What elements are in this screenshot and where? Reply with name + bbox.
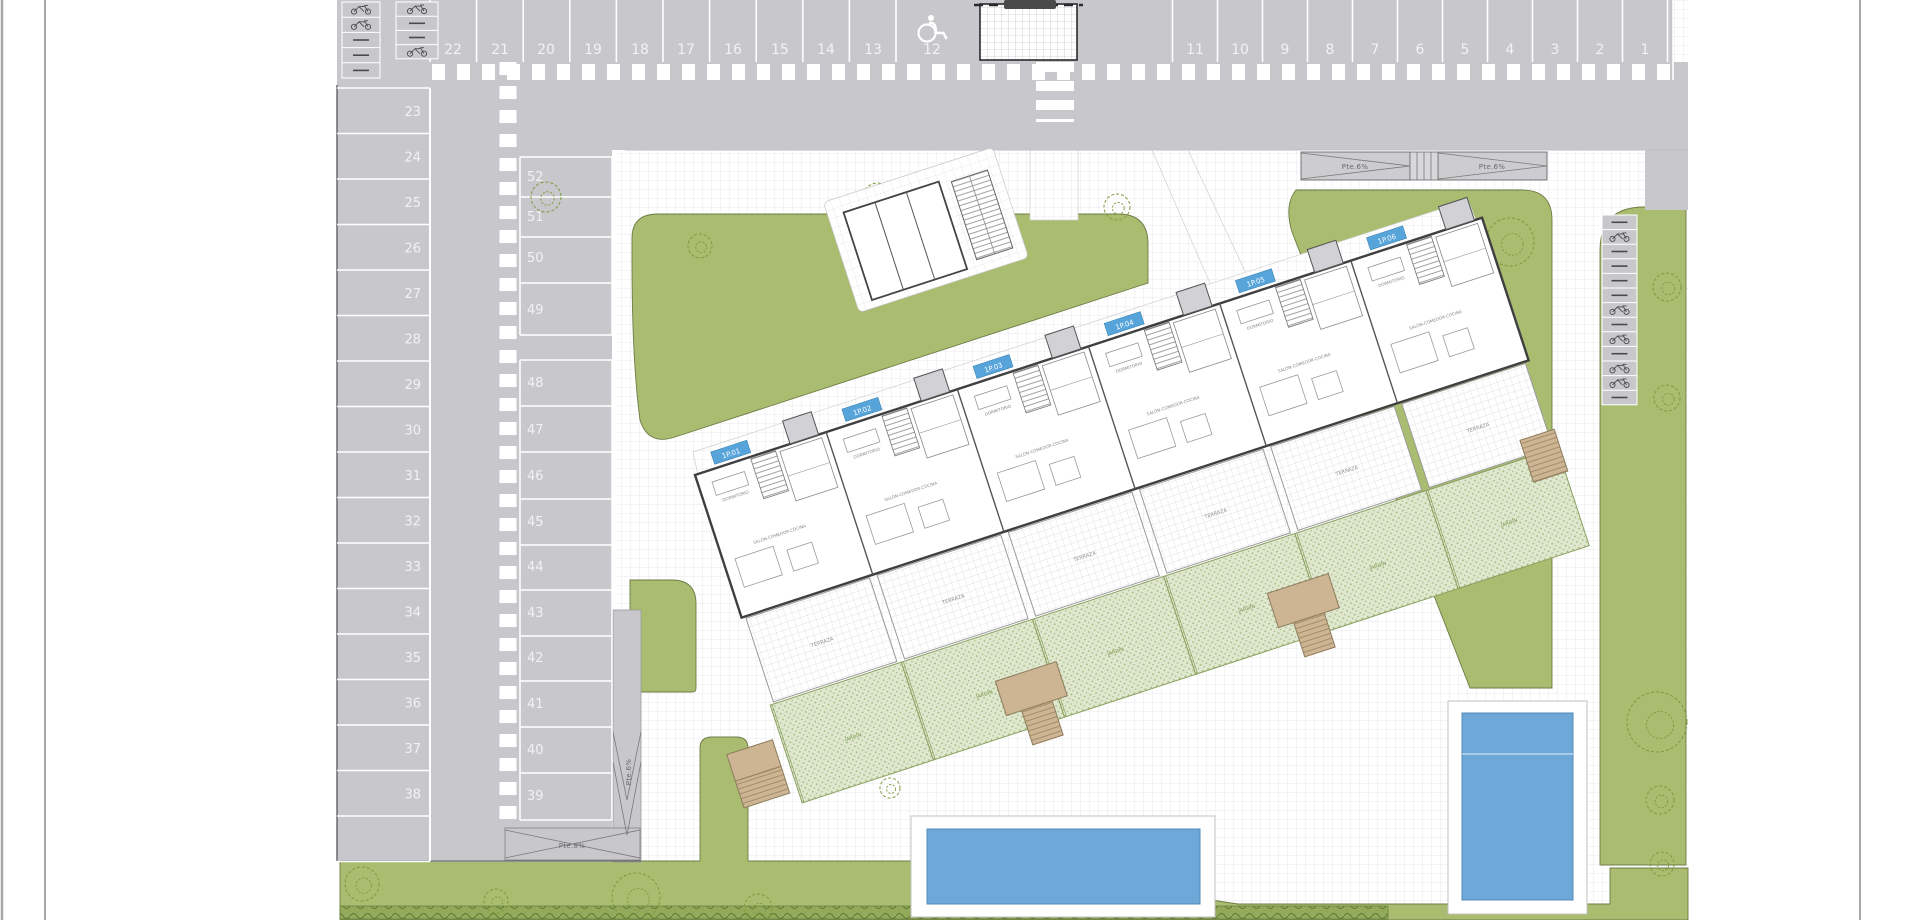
parking-space-label: 13 (864, 42, 882, 58)
ramp-label-vertical: Pte.6% (625, 759, 633, 785)
parking-space-label: 41 (527, 697, 544, 712)
parking-space-label: 36 (404, 697, 421, 712)
parking-space-label: 18 (631, 42, 649, 58)
parking-space-label: 51 (527, 210, 544, 225)
parking-space-label: 43 (527, 606, 544, 621)
parking-space-label: 44 (527, 560, 544, 575)
parking-space-label: 5 (1461, 42, 1470, 58)
garage-ramps-northeast: Pte.6% Pte.6% (1301, 152, 1547, 180)
parking-space-label: 7 (1371, 42, 1380, 58)
parking-space-label: 32 (404, 515, 421, 530)
parking-space-label: 22 (444, 42, 462, 58)
site-plan-sheet: Pte.6% Pte.6% Pte.6% Pte.8% 222120191817… (0, 0, 1920, 920)
parking-space-label: 6 (1416, 42, 1425, 58)
parking-space-label: 50 (527, 251, 544, 266)
car-icon (1004, 0, 1056, 9)
parking-space-label: 12 (923, 42, 941, 58)
parking-space-label: 46 (527, 469, 544, 484)
parking-space-label: 45 (527, 515, 544, 530)
bike-rack-table (1602, 215, 1637, 405)
parking-space-label: 26 (404, 242, 421, 257)
parking-space-label: 37 (404, 742, 421, 757)
parking-space-label: 25 (404, 196, 421, 211)
driveway-south-ramp (613, 610, 641, 862)
parking-space-label: 15 (771, 42, 789, 58)
parking-space-label: 27 (404, 287, 421, 302)
parking-space-label: 23 (404, 105, 421, 120)
parking-left-lot (337, 0, 612, 862)
parking-space-label: 21 (491, 42, 509, 58)
parking-space-label: 33 (404, 560, 421, 575)
ramp-label: Pte.6% (1342, 163, 1368, 171)
parking-space-label: 34 (404, 606, 421, 621)
parking-space-label: 38 (404, 788, 421, 803)
parking-space-label: 1 (1641, 42, 1650, 58)
parking-space-label: 28 (404, 333, 421, 348)
ramp-label: Pte.8% (559, 842, 585, 850)
parking-space-label: 40 (527, 743, 544, 758)
parking-space-label: 47 (527, 423, 544, 438)
parking-space-label: 29 (404, 378, 421, 393)
parking-space-label: 17 (677, 42, 695, 58)
driveway-northeast (1645, 62, 1688, 210)
garage-entrance-ramp (980, 4, 1077, 60)
walkway-from-crosswalk (1030, 148, 1078, 220)
parking-space-label: 4 (1506, 42, 1515, 58)
site-plan-drawing: Pte.6% Pte.6% Pte.6% Pte.8% 222120191817… (0, 0, 1920, 920)
parking-space-label: 16 (724, 42, 742, 58)
parking-space-label: 11 (1186, 42, 1204, 58)
east-pool (1462, 713, 1573, 900)
main-pool (927, 829, 1200, 904)
parking-space-label: 49 (527, 303, 544, 318)
parking-space-label: 19 (584, 42, 602, 58)
parking-space-label: 8 (1326, 42, 1335, 58)
parking-space-label: 42 (527, 651, 544, 666)
parking-space-label: 2 (1596, 42, 1605, 58)
parking-space-label: 3 (1551, 42, 1560, 58)
parking-space-label: 31 (404, 469, 421, 484)
parking-space-label: 10 (1231, 42, 1249, 58)
parking-space-label: 48 (527, 376, 544, 391)
parking-space-label: 20 (537, 42, 555, 58)
parking-space-label: 30 (404, 424, 421, 439)
parking-space-label: 35 (404, 651, 421, 666)
parking-space-label: 9 (1281, 42, 1290, 58)
parking-space-label: 39 (527, 789, 544, 804)
parking-space-label: 14 (817, 42, 835, 58)
ramp-label: Pte.6% (1479, 163, 1505, 171)
parking-space-label: 24 (404, 151, 421, 166)
